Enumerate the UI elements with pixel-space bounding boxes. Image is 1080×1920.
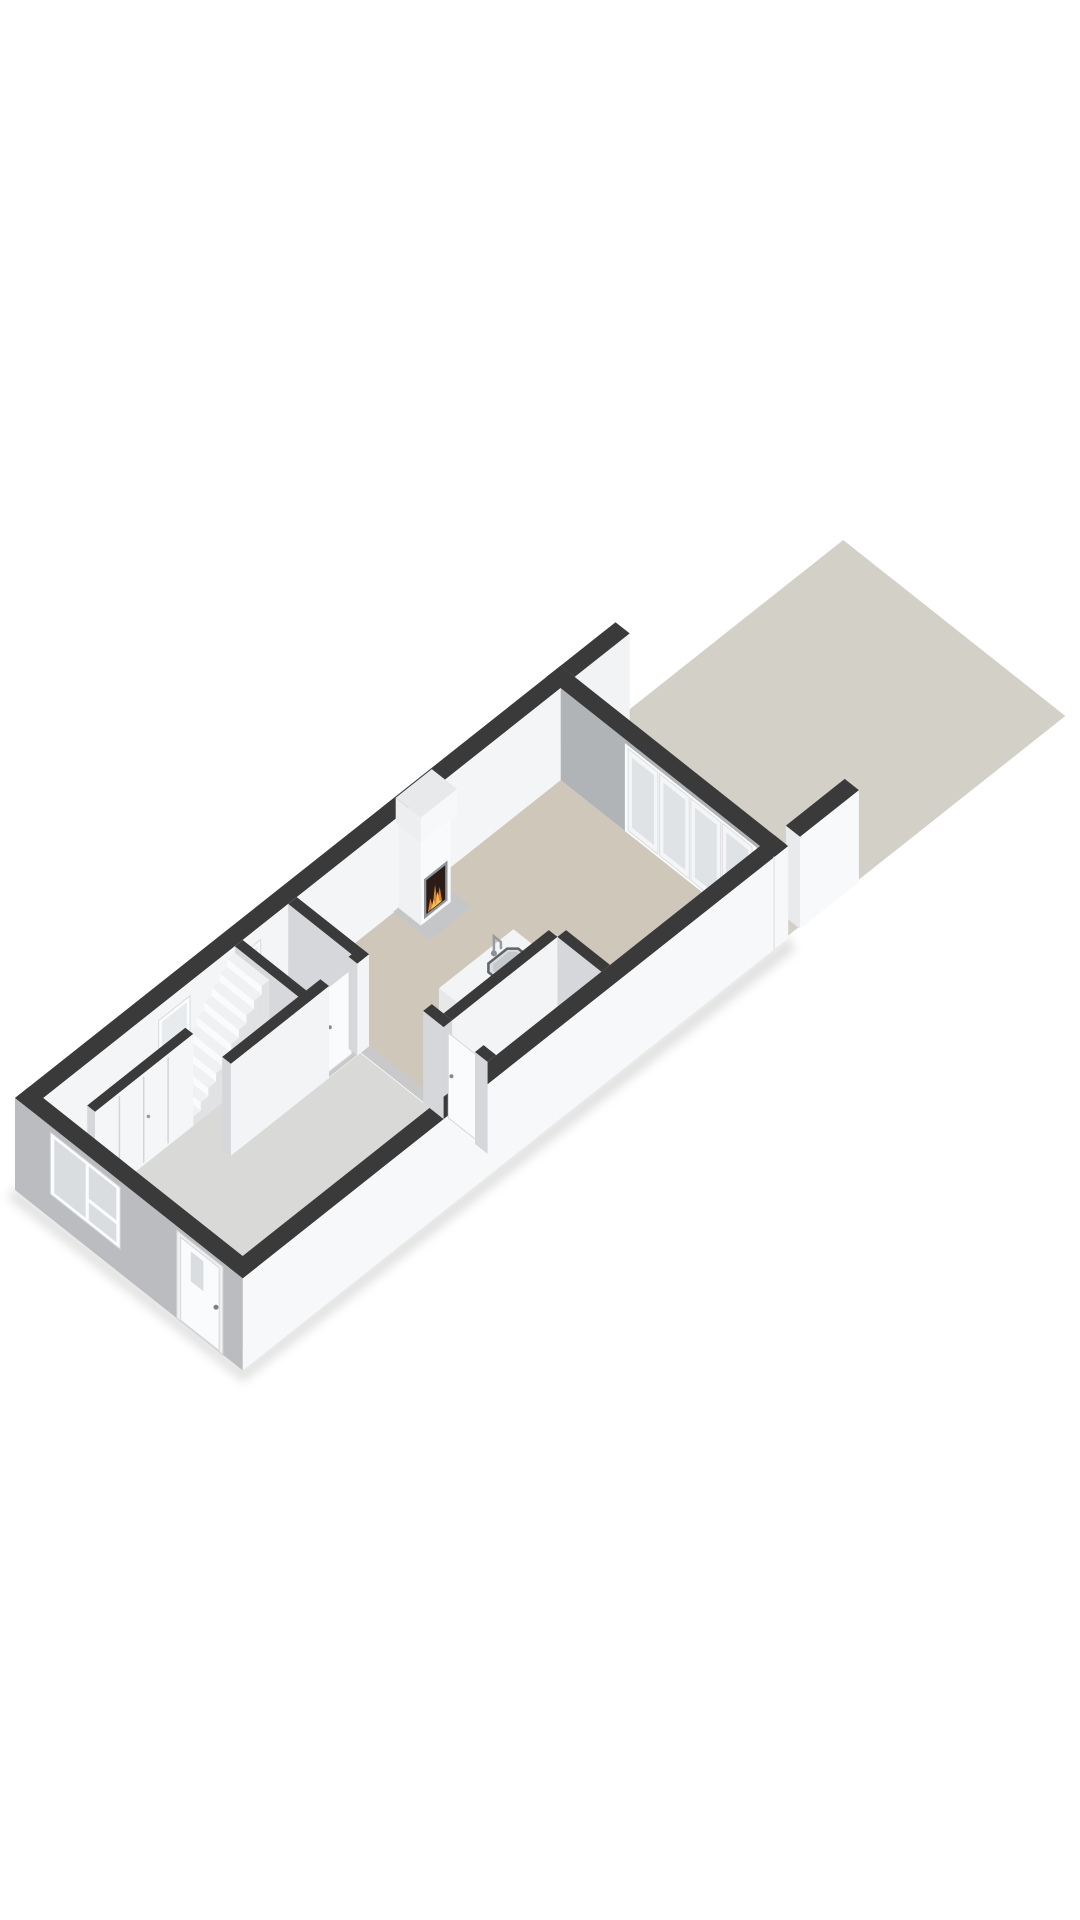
corridor-wall-b-se-face [357,954,369,1055]
hall-living-wall-b-sw-face [423,1011,443,1119]
corridor-wall-a-sw-face [222,1057,231,1156]
closet-handle [147,1115,151,1119]
hall-living-wall-c-sw-face [475,1052,488,1154]
storeroom-door-handle [450,1074,454,1078]
floorplan-canvas [0,0,1080,1920]
front-door-handle [214,1305,219,1310]
corridor-wall-b-sw-face [349,957,358,1056]
floorplan-3d-svg [0,0,1080,1920]
sink-faucet-base [491,950,497,956]
